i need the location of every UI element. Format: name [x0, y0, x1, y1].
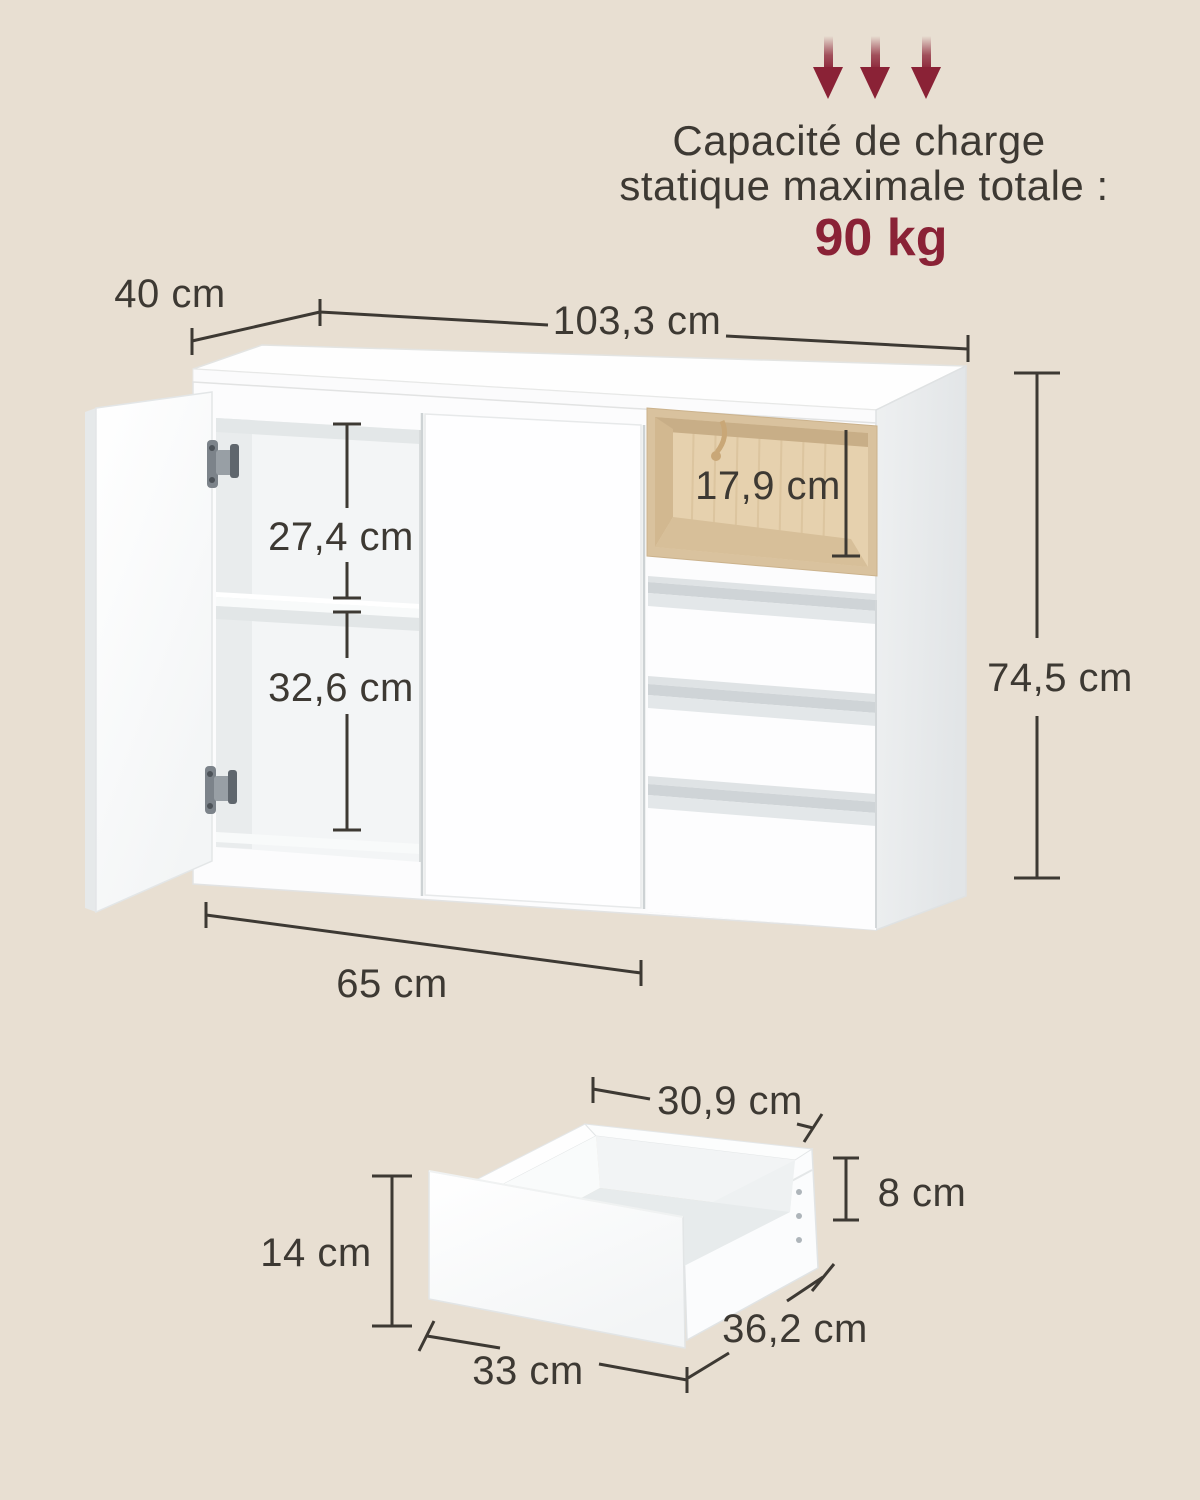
load-capacity-text-line1: Capacité de charge — [672, 117, 1045, 164]
cabinet-open-cupboard — [216, 418, 420, 862]
closed-middle-door — [422, 413, 644, 909]
cabinet-drawer-fronts — [648, 582, 876, 930]
dim-drawer-inner-height-label: 8 cm — [878, 1171, 967, 1215]
cabinet-right-side — [876, 366, 966, 930]
load-capacity-text-line2: statique maximale totale : — [619, 162, 1108, 209]
cabinet-illustration — [85, 345, 966, 930]
diagram-canvas: Capacité de charge statique maximale tot… — [0, 0, 1200, 1500]
dim-depth-label: 40 cm — [114, 272, 225, 316]
dim-drawer-front-height-label: 14 cm — [260, 1231, 371, 1275]
dim-width-label: 103,3 cm — [553, 299, 722, 343]
dim-lower-compartment-label: 32,6 cm — [268, 666, 414, 710]
dim-drawer-inner-width-label: 30,9 cm — [657, 1079, 803, 1123]
dim-drawer-depth-label: 36,2 cm — [722, 1307, 868, 1351]
open-left-door — [85, 392, 212, 912]
dim-drawer-front-width-label: 33 cm — [472, 1349, 583, 1393]
dim-height-label: 74,5 cm — [987, 656, 1133, 700]
dim-upper-compartment-label: 27,4 cm — [268, 515, 414, 559]
dim-door-section-label: 65 cm — [336, 962, 447, 1006]
product-dimension-diagram: Capacité de charge statique maximale tot… — [0, 0, 1200, 1500]
load-capacity-value: 90 kg — [815, 209, 948, 267]
dim-open-compartment-label: 17,9 cm — [695, 464, 841, 508]
